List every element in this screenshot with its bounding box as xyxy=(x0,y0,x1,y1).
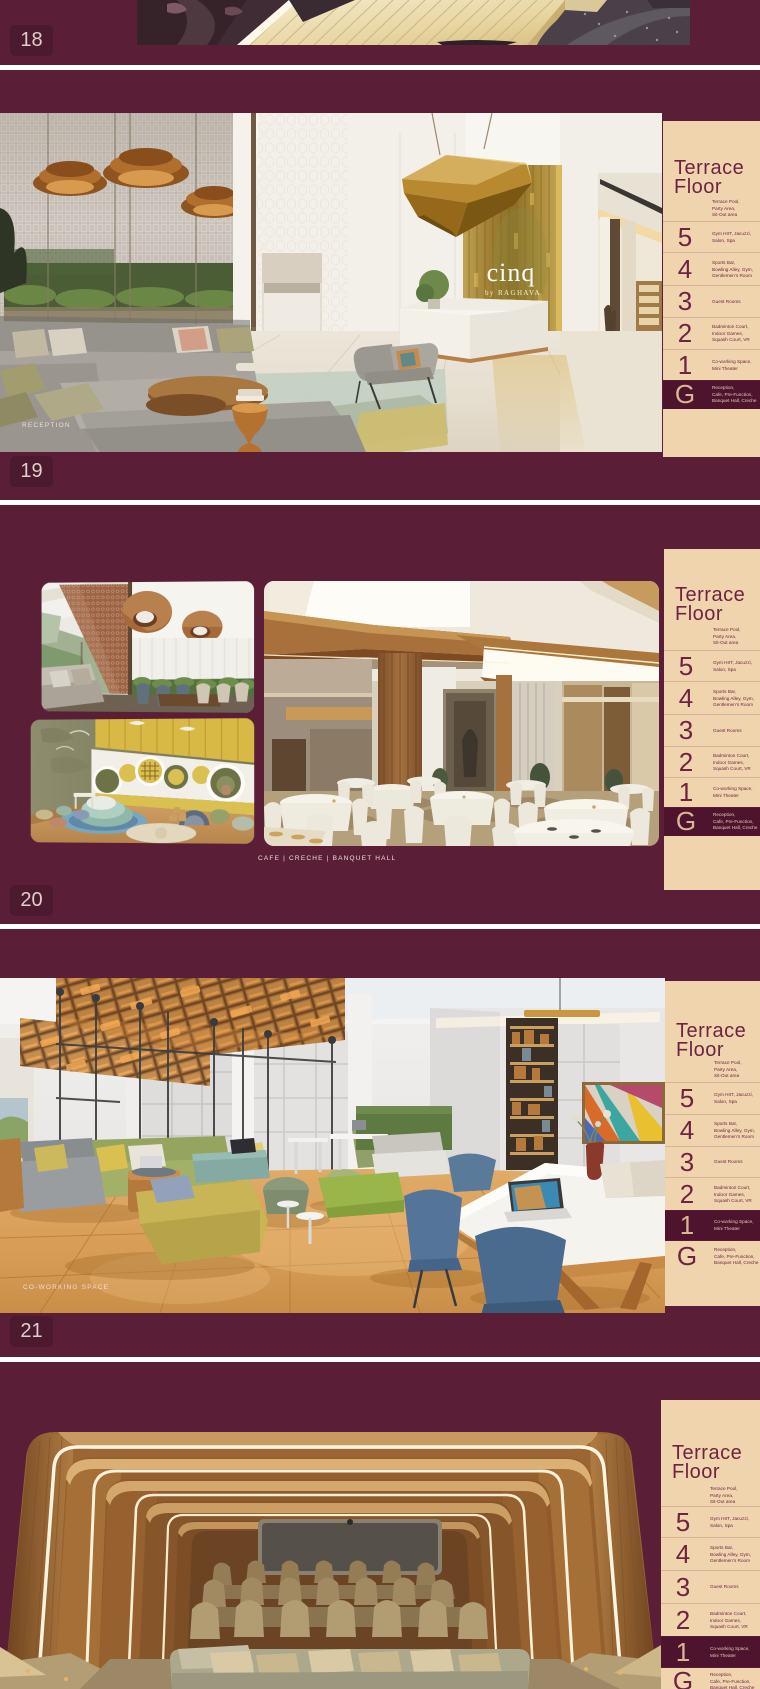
svg-text:by RAGHAVA: by RAGHAVA xyxy=(485,289,541,297)
svg-text:cinq: cinq xyxy=(487,258,536,287)
